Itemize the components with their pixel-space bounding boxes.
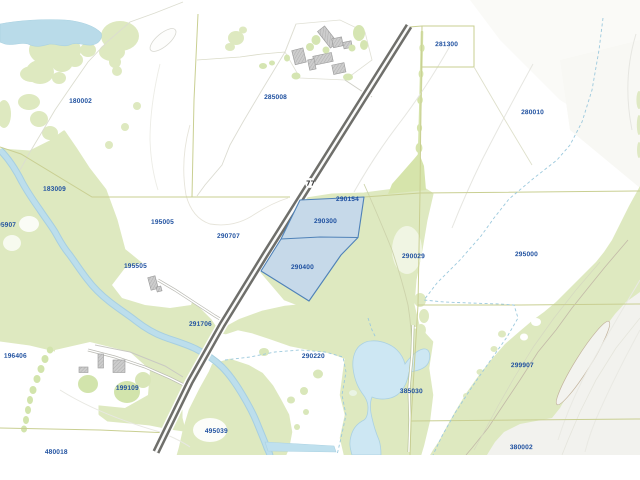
svg-text:281300: 281300	[435, 41, 458, 48]
svg-text:195005: 195005	[151, 219, 174, 226]
svg-text:280010: 280010	[521, 109, 544, 116]
svg-text:290029: 290029	[402, 253, 425, 260]
svg-text:380002: 380002	[510, 444, 533, 451]
svg-text:290220: 290220	[302, 353, 325, 360]
svg-text:480018: 480018	[45, 449, 68, 456]
svg-text:199109: 199109	[116, 385, 139, 392]
svg-text:291706: 291706	[189, 321, 212, 328]
svg-text:290154: 290154	[336, 196, 359, 203]
svg-text:195505: 195505	[124, 263, 147, 270]
svg-text:385030: 385030	[400, 388, 423, 395]
svg-text:495039: 495039	[205, 428, 228, 435]
svg-text:299907: 299907	[511, 362, 534, 369]
svg-text:290707: 290707	[217, 233, 240, 240]
svg-text:180002: 180002	[69, 98, 92, 105]
svg-text:183009: 183009	[43, 186, 66, 193]
svg-text:295000: 295000	[515, 251, 538, 258]
svg-text:290300: 290300	[314, 218, 337, 225]
svg-text:290400: 290400	[291, 264, 314, 271]
svg-text:196406: 196406	[4, 353, 27, 360]
svg-text:95907: 95907	[0, 222, 16, 229]
svg-text:285008: 285008	[264, 94, 287, 101]
